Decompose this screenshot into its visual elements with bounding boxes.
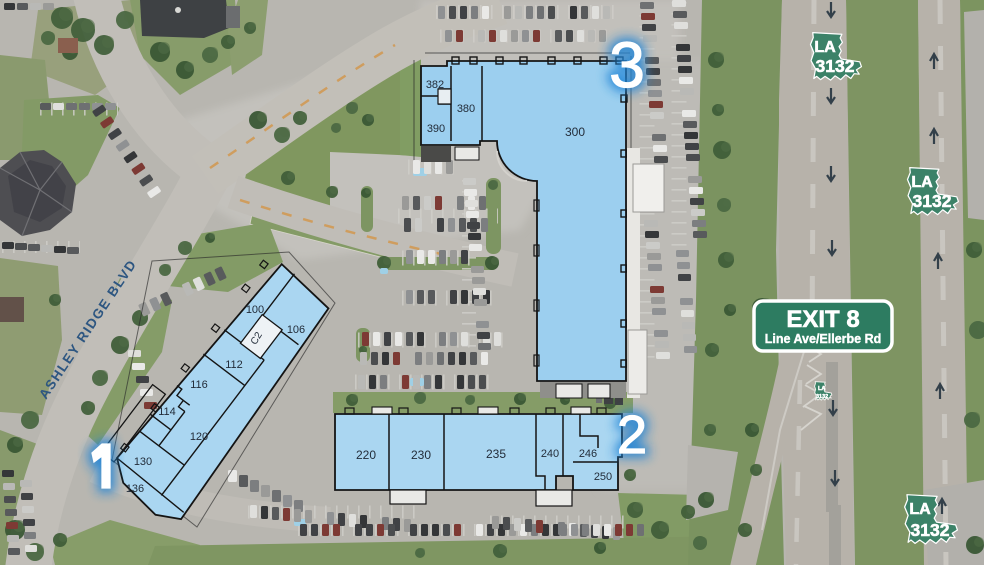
svg-text:220: 220 xyxy=(356,448,376,462)
svg-text:3: 3 xyxy=(609,29,645,101)
svg-text:2: 2 xyxy=(617,405,647,465)
svg-text:112: 112 xyxy=(225,359,243,371)
svg-text:230: 230 xyxy=(411,448,431,462)
svg-text:130: 130 xyxy=(134,456,152,468)
svg-text:106: 106 xyxy=(287,324,305,336)
svg-text:116: 116 xyxy=(190,379,208,391)
svg-text:LA: LA xyxy=(911,174,933,191)
svg-text:120: 120 xyxy=(190,431,208,443)
svg-text:246: 246 xyxy=(579,448,597,460)
svg-text:LA: LA xyxy=(909,501,931,518)
svg-text:240: 240 xyxy=(541,448,559,460)
svg-text:300: 300 xyxy=(565,125,585,139)
svg-text:Line Ave/Ellerbe Rd: Line Ave/Ellerbe Rd xyxy=(765,332,881,346)
svg-text:390: 390 xyxy=(427,123,445,135)
svg-text:250: 250 xyxy=(594,471,612,483)
svg-text:3132: 3132 xyxy=(816,56,855,76)
svg-text:EXIT 8: EXIT 8 xyxy=(786,306,859,333)
svg-text:114: 114 xyxy=(158,406,176,418)
svg-text:3132: 3132 xyxy=(913,191,952,211)
svg-text:235: 235 xyxy=(486,447,506,461)
svg-text:3132: 3132 xyxy=(816,394,828,400)
svg-text:100: 100 xyxy=(246,304,264,316)
svg-text:LA: LA xyxy=(818,386,825,392)
svg-text:136: 136 xyxy=(126,483,144,495)
svg-text:382: 382 xyxy=(426,79,444,91)
svg-text:LA: LA xyxy=(814,39,836,56)
svg-text:380: 380 xyxy=(457,103,475,115)
svg-text:3132: 3132 xyxy=(911,520,950,540)
